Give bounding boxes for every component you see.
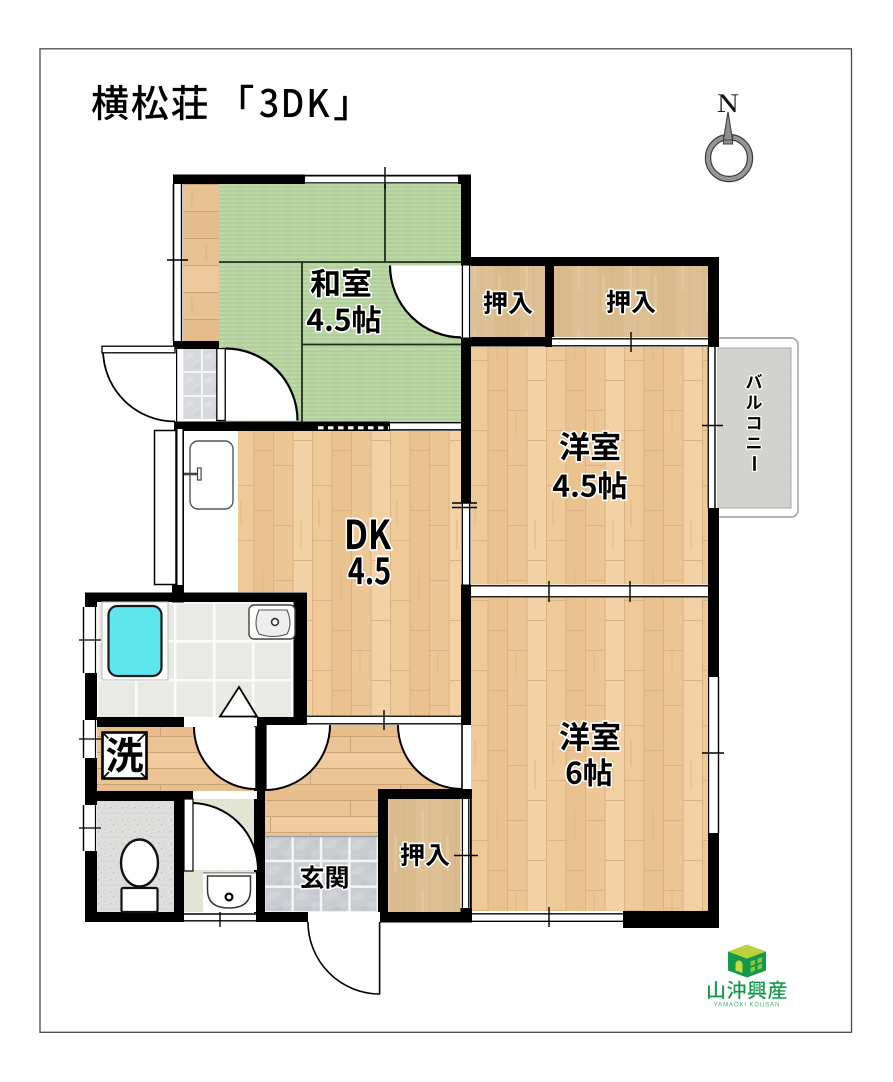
svg-text:YAMAOKI KOUSAN: YAMAOKI KOUSAN	[714, 1003, 781, 1009]
